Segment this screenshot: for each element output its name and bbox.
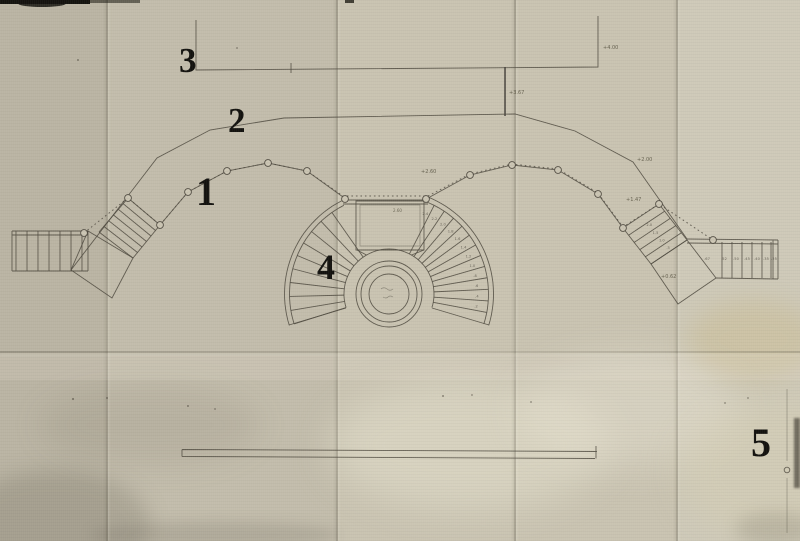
balustrade-post (157, 222, 164, 229)
scanned-plan-sheet: 2.42.22.01.81.61.41.21.0.8.6.4.22.01.51.… (0, 0, 800, 541)
fan-step-number: .8 (473, 274, 477, 278)
stamp-label-4: 4 (317, 247, 335, 287)
fan-step-number: 1.2 (466, 254, 472, 258)
fan-step-number: .6 (475, 284, 479, 288)
center-circle-outer (356, 261, 422, 327)
upper-terrace-wall (196, 16, 598, 116)
right-margin-marks (784, 389, 790, 533)
fan-tread-left (332, 212, 363, 257)
annotation-stair-head-right: +1.47 (626, 197, 641, 203)
balustrade-dotted-rail (84, 163, 713, 240)
fan-tread-left (290, 295, 344, 296)
balustrade-post (467, 172, 474, 179)
flight-step-number: .5 (666, 246, 669, 250)
balustrade-post (265, 160, 272, 167)
stamp-label-2: 2 (228, 101, 246, 140)
right-stair-number: .45 (744, 257, 750, 261)
center-handwriting (381, 288, 393, 298)
balustrade-post (224, 168, 231, 175)
fan-step-number: 1.4 (461, 245, 467, 249)
survey-marker-circle (784, 467, 790, 473)
fan-step-number: 2.2 (432, 217, 438, 221)
right-stair-number: .35 (763, 257, 769, 261)
right-landing (651, 240, 716, 304)
right-stair-number: .25 (771, 257, 777, 261)
balustrade-post (620, 225, 627, 232)
center-circle-inner (369, 274, 409, 314)
flight-step-number: 2.0 (646, 223, 652, 227)
fan-tread-right (434, 297, 488, 301)
balustrade-post (304, 168, 311, 175)
gallery-balustrade (84, 163, 713, 240)
balustrade-post (710, 237, 717, 244)
flight-step-number: 1.5 (653, 231, 659, 235)
annotation-central-landing: 2.60 (393, 208, 402, 213)
plan-drawing: 2.42.22.01.81.61.41.21.0.8.6.4.22.01.51.… (0, 0, 800, 541)
right-stair-number: .50 (733, 257, 739, 261)
right-stair-number: .52 (721, 257, 727, 261)
fan-step-number: 1.6 (455, 237, 461, 241)
balustrade-post (555, 167, 562, 174)
fan-step-number: 2.4 (422, 212, 428, 216)
balustrade-post (509, 162, 516, 169)
right-stair-number: .40 (754, 257, 760, 261)
annotation-upper-terrace: +4.00 (603, 45, 618, 51)
annotation-wall-right: +2.00 (637, 157, 652, 163)
right-flight-tread (640, 226, 676, 250)
fan-step-number: 2.0 (440, 223, 446, 227)
fan-tread-left (294, 308, 346, 324)
right-flight-tread (645, 233, 681, 257)
annotation-landing-right: +0.62 (661, 274, 676, 280)
fan-step-number: .2 (474, 305, 477, 309)
right-stair-number: .67 (704, 257, 710, 261)
scale-bar (182, 446, 597, 459)
fan-step-number: .4 (475, 294, 479, 298)
annotation-gallery-right: +2.60 (421, 169, 436, 175)
stamp-label-1: 1 (196, 169, 216, 214)
balustrade-post (185, 189, 192, 196)
generated-treads-and-arcs: 2.42.22.01.81.61.41.21.0.8.6.4.22.01.51.… (27, 160, 777, 326)
flight-step-number: 1.0 (659, 239, 665, 243)
fan-tread-left (291, 301, 345, 310)
balustrade-post (81, 230, 88, 237)
fan-step-number: 1.0 (469, 264, 475, 268)
balustrade-post (595, 191, 602, 198)
balustrade-post (342, 196, 349, 203)
balustrade-post (125, 195, 132, 202)
fan-step-number: 1.8 (448, 229, 454, 233)
fan-tread-right (434, 289, 488, 292)
balustrade-post (656, 201, 663, 208)
central-landing-square (356, 201, 424, 250)
annotation-wall-connector: +3.67 (509, 90, 524, 96)
paper-specks (72, 47, 749, 410)
stamp-label-3: 3 (179, 41, 197, 80)
fan-arc (344, 249, 434, 308)
left-straight-stair (12, 231, 88, 271)
balustrade-post (423, 196, 430, 203)
stamp-label-5: 5 (751, 420, 771, 465)
left-landing (71, 231, 133, 298)
fan-arc (426, 196, 493, 325)
